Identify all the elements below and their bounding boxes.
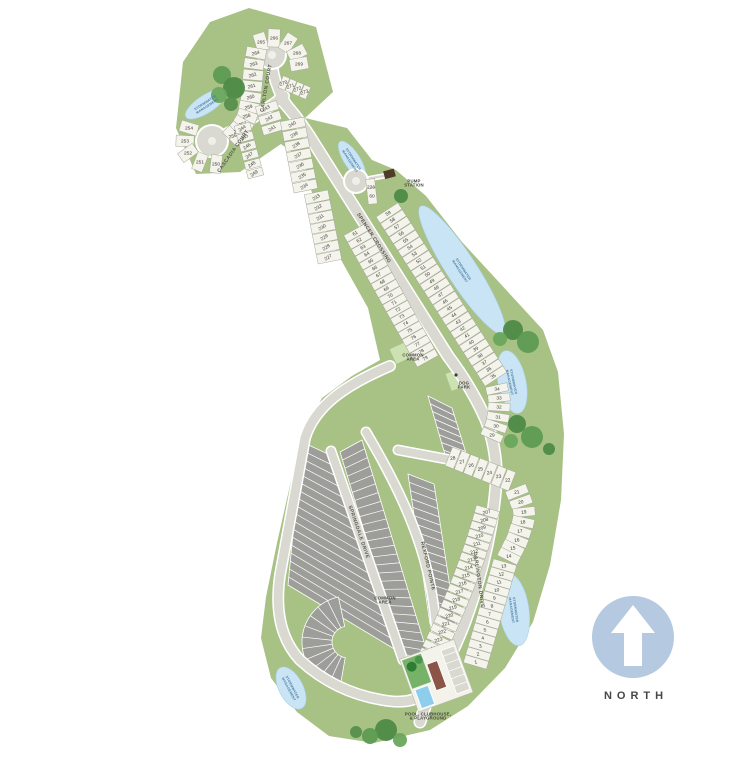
pool-clubhouse-label: POOL, CLUBHOUSE,& PLAYGROUND <box>405 712 451 721</box>
lot-number: 251 <box>196 160 204 166</box>
tree-icon <box>224 97 238 111</box>
lot-number: 226 <box>367 185 375 191</box>
tree-icon <box>393 733 407 747</box>
compass: NORTH <box>592 596 674 702</box>
lot-number: 30 <box>493 424 499 430</box>
tree-icon <box>543 443 555 455</box>
tree-icon <box>493 332 507 346</box>
tree-icon <box>517 331 539 353</box>
lot-number: 32 <box>496 405 502 411</box>
tree-icon <box>394 189 408 203</box>
lot-number: 34 <box>494 387 500 393</box>
pump-station-label: PUMPSTATION <box>404 179 424 188</box>
cul-de-sac-island <box>268 51 276 59</box>
site-plan-page: 2652662672682692702712722732642632622612… <box>0 0 739 768</box>
tree-icon <box>521 426 543 448</box>
lot-number: 253 <box>181 139 189 145</box>
cul-de-sac-island <box>352 177 360 185</box>
lot-number: 60 <box>369 194 375 200</box>
site-plan-layers: 2652662672682692702712722732642632622612… <box>176 8 564 747</box>
lot-number: 29 <box>489 433 495 439</box>
tree-icon <box>504 434 518 448</box>
site-plan-map: 2652662672682692702712722732642632622612… <box>0 0 739 768</box>
lot-number: 268 <box>293 51 301 57</box>
compass-label: NORTH <box>604 690 668 702</box>
cul-de-sac-island <box>208 137 216 145</box>
lot-number: 31 <box>495 415 501 421</box>
dog-park-label: DOGPARK <box>458 381 471 390</box>
lot-number: 265 <box>257 40 265 46</box>
lot-number: 33 <box>496 396 502 402</box>
lot-number: 269 <box>295 62 303 68</box>
tree-icon <box>350 726 362 738</box>
dog-park-marker <box>454 373 457 376</box>
tree-icon <box>362 728 378 744</box>
lot-number: 266 <box>270 36 278 42</box>
lot-number: 267 <box>284 41 292 47</box>
lot-number: 252 <box>184 151 192 157</box>
lot-number: 254 <box>185 126 193 132</box>
